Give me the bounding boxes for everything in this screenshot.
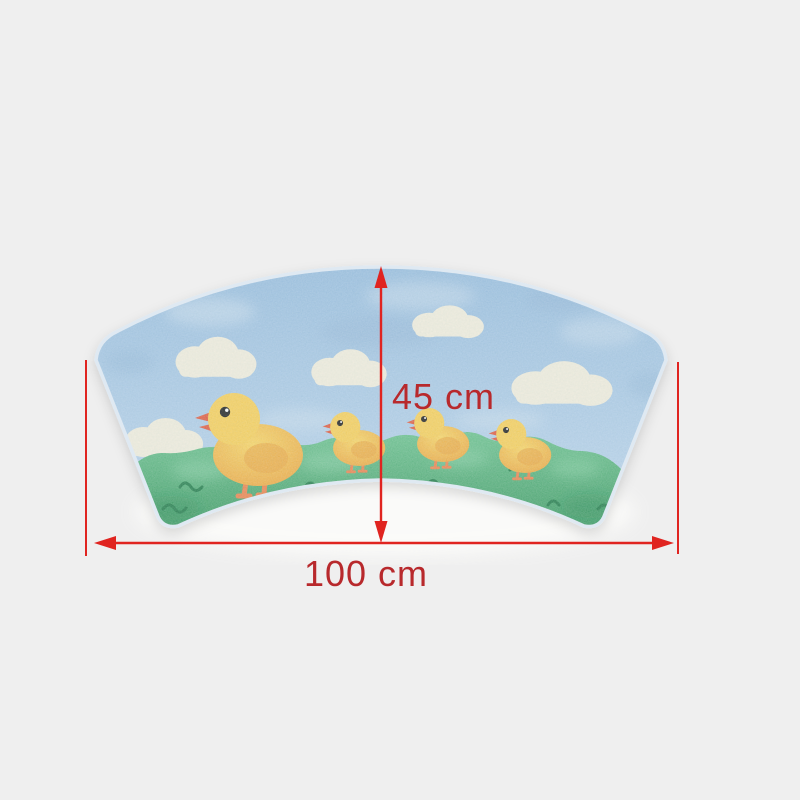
width-label: 100 cm (304, 553, 428, 594)
product-photo: 45 cm 100 cm (0, 0, 800, 800)
height-label: 45 cm (392, 376, 495, 417)
